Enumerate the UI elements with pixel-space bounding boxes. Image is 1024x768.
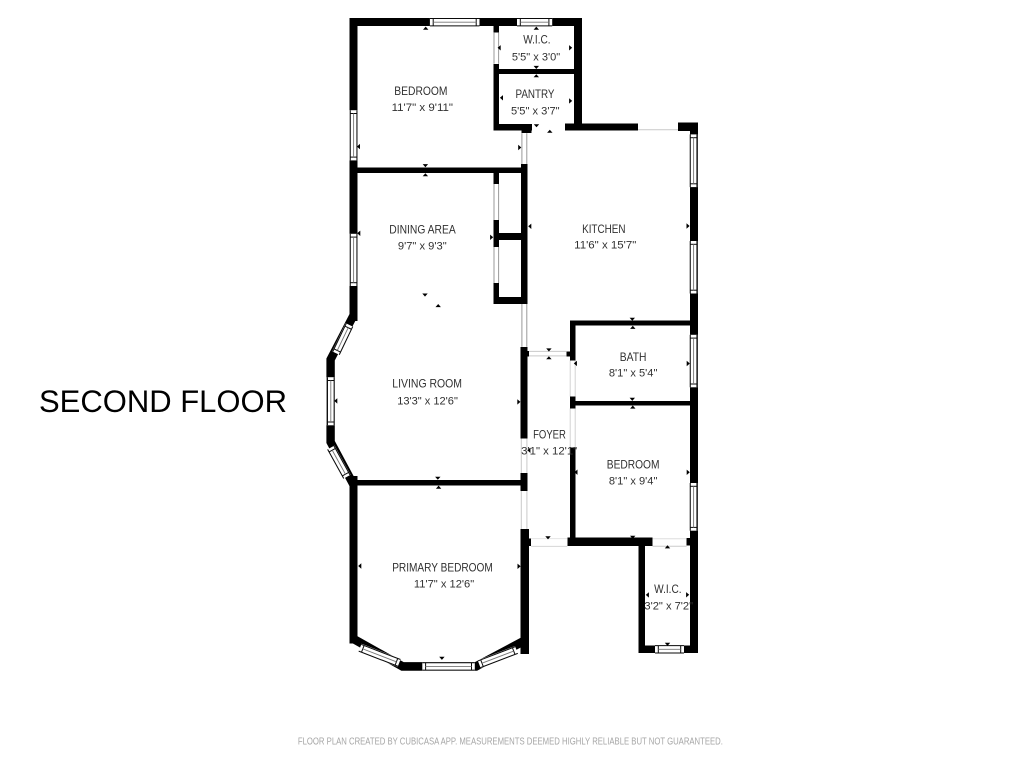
svg-text:BEDROOM: BEDROOM <box>394 84 447 98</box>
svg-text:5'5" x 3'0": 5'5" x 3'0" <box>512 52 560 64</box>
svg-text:KITCHEN: KITCHEN <box>582 222 625 236</box>
svg-text:PRIMARY BEDROOM: PRIMARY BEDROOM <box>392 560 493 574</box>
svg-text:11'7" x 12'6": 11'7" x 12'6" <box>414 579 474 591</box>
svg-text:11'7" x 9'11": 11'7" x 9'11" <box>392 102 453 114</box>
svg-text:DINING AREA: DINING AREA <box>389 223 455 237</box>
svg-text:LIVING ROOM: LIVING ROOM <box>392 377 462 391</box>
svg-text:8'1" x 5'4": 8'1" x 5'4" <box>609 368 658 380</box>
svg-text:3'1" x 12'1": 3'1" x 12'1" <box>521 445 577 457</box>
svg-text:13'3" x 12'6": 13'3" x 12'6" <box>397 395 458 407</box>
svg-text:W.I.C.: W.I.C. <box>654 582 682 596</box>
svg-text:8'1" x 9'4": 8'1" x 9'4" <box>609 475 658 487</box>
svg-text:PANTRY: PANTRY <box>516 87 555 101</box>
svg-text:BATH: BATH <box>620 350 647 364</box>
svg-text:FLOOR PLAN CREATED BY CUBICASA: FLOOR PLAN CREATED BY CUBICASA APP. MEAS… <box>298 736 723 747</box>
svg-text:BEDROOM: BEDROOM <box>607 458 660 472</box>
svg-text:11'6" x 15'7": 11'6" x 15'7" <box>574 240 636 252</box>
svg-text:9'7" x 9'3": 9'7" x 9'3" <box>398 241 447 253</box>
svg-text:W.I.C.: W.I.C. <box>523 33 550 47</box>
svg-text:5'5" x 3'7": 5'5" x 3'7" <box>511 106 560 118</box>
svg-text:3'2" x 7'2": 3'2" x 7'2" <box>644 600 693 612</box>
svg-text:FOYER: FOYER <box>533 428 566 442</box>
svg-text:SECOND FLOOR: SECOND FLOOR <box>39 384 287 419</box>
